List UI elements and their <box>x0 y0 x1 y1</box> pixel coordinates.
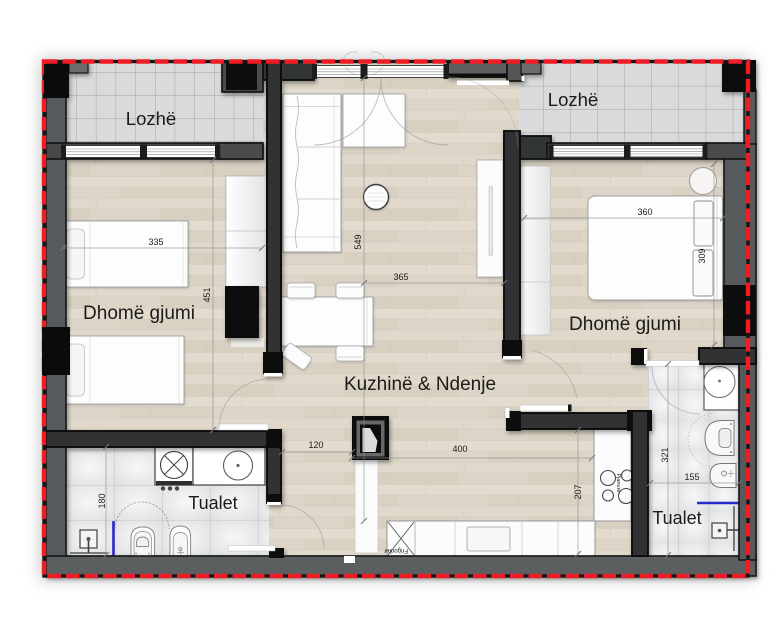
svg-text:451: 451 <box>202 287 212 302</box>
svg-text:Lozhë: Lozhë <box>126 108 176 129</box>
svg-text:180: 180 <box>97 493 107 508</box>
svg-text:120: 120 <box>308 440 323 450</box>
svg-text:Frigorifer: Frigorifer <box>384 547 408 553</box>
svg-text:155: 155 <box>684 472 699 482</box>
svg-text:Dhomë gjumi: Dhomë gjumi <box>569 314 681 335</box>
svg-text:207: 207 <box>573 484 583 499</box>
svg-text:Pjanure: Pjanure <box>615 474 621 493</box>
svg-text:360: 360 <box>637 207 652 217</box>
svg-text:365: 365 <box>393 272 408 282</box>
svg-text:400: 400 <box>452 444 467 454</box>
svg-text:549: 549 <box>353 234 363 249</box>
svg-text:309: 309 <box>697 248 707 263</box>
svg-text:Dhomë gjumi: Dhomë gjumi <box>83 303 195 324</box>
svg-text:Lozhë: Lozhë <box>548 89 598 110</box>
svg-text:Kuzhinë & Ndenje: Kuzhinë & Ndenje <box>344 374 496 395</box>
svg-text:Tualet: Tualet <box>652 508 701 528</box>
svg-text:Tualet: Tualet <box>188 493 237 513</box>
svg-text:321: 321 <box>660 447 670 462</box>
svg-text:335: 335 <box>148 237 163 247</box>
